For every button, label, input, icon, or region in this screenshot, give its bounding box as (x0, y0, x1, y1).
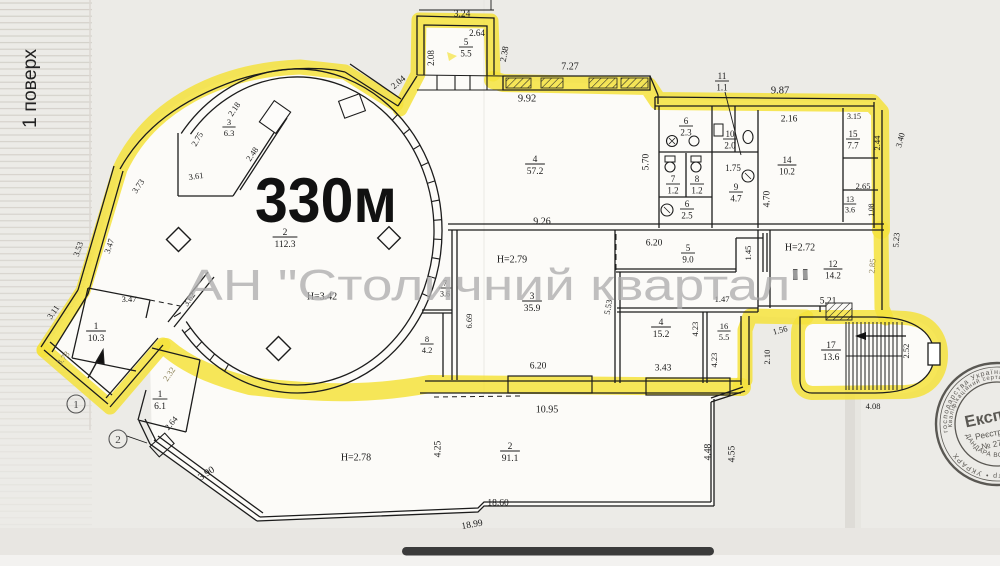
svg-text:13.6: 13.6 (823, 353, 840, 363)
svg-text:H=2.78: H=2.78 (341, 453, 371, 464)
svg-text:3: 3 (227, 117, 231, 127)
svg-text:13: 13 (846, 195, 854, 204)
svg-text:112.3: 112.3 (274, 240, 295, 250)
svg-text:2.52: 2.52 (901, 344, 911, 359)
svg-text:6.3: 6.3 (224, 128, 235, 138)
svg-text:9.92: 9.92 (518, 94, 536, 105)
svg-text:4.7: 4.7 (730, 194, 742, 204)
svg-text:6: 6 (684, 116, 689, 126)
svg-text:2: 2 (115, 434, 121, 446)
svg-text:3.15: 3.15 (847, 112, 861, 121)
svg-text:5.23: 5.23 (890, 232, 901, 248)
svg-text:3.24: 3.24 (454, 9, 471, 19)
svg-text:АН "Столичний квартал": АН "Столичний квартал" (186, 261, 810, 310)
svg-text:4.25: 4.25 (433, 440, 443, 457)
svg-text:1: 1 (94, 322, 99, 332)
svg-text:4.55: 4.55 (727, 445, 737, 462)
svg-text:57.2: 57.2 (527, 167, 544, 177)
svg-text:10.2: 10.2 (779, 167, 795, 177)
svg-text:15: 15 (849, 129, 859, 139)
svg-text:10.95: 10.95 (536, 405, 559, 416)
svg-text:1.2: 1.2 (667, 186, 678, 196)
svg-text:1.08: 1.08 (867, 203, 876, 216)
svg-text:3.43: 3.43 (655, 363, 672, 373)
svg-text:1: 1 (158, 390, 163, 400)
svg-text:14.2: 14.2 (825, 271, 841, 281)
svg-text:12: 12 (829, 259, 838, 269)
svg-text:9.87: 9.87 (771, 86, 789, 97)
svg-text:5.5: 5.5 (460, 49, 472, 59)
svg-text:4.2: 4.2 (422, 345, 433, 355)
svg-text:2.85: 2.85 (866, 258, 877, 274)
svg-text:3.61: 3.61 (188, 170, 204, 182)
svg-text:4.70: 4.70 (762, 190, 772, 207)
svg-text:2.0: 2.0 (724, 141, 736, 151)
svg-text:2.16: 2.16 (781, 114, 798, 124)
svg-text:9: 9 (734, 182, 739, 192)
svg-text:7.27: 7.27 (561, 62, 579, 73)
svg-text:7.7: 7.7 (847, 141, 859, 151)
svg-text:16: 16 (720, 321, 729, 331)
svg-text:5.21: 5.21 (820, 296, 837, 306)
svg-text:2.65: 2.65 (856, 181, 871, 191)
svg-text:17: 17 (826, 341, 836, 351)
svg-text:1 поверх: 1 поверх (19, 49, 41, 128)
svg-text:6.69: 6.69 (464, 314, 474, 329)
svg-text:2.64: 2.64 (469, 28, 485, 38)
svg-text:6.1: 6.1 (154, 402, 166, 412)
svg-text:2: 2 (508, 442, 513, 452)
svg-text:4.48: 4.48 (703, 443, 713, 460)
svg-text:15.2: 15.2 (653, 330, 670, 340)
svg-text:18.60: 18.60 (487, 498, 509, 508)
svg-text:14: 14 (783, 155, 793, 165)
svg-text:11: 11 (718, 71, 727, 81)
svg-text:5: 5 (464, 37, 469, 47)
svg-text:H=2.72: H=2.72 (785, 243, 815, 254)
svg-text:6: 6 (685, 199, 690, 209)
svg-text:4.08: 4.08 (866, 401, 881, 411)
svg-text:1.1: 1.1 (716, 83, 727, 93)
svg-text:330м: 330м (255, 166, 397, 236)
svg-text:8: 8 (425, 334, 429, 344)
svg-text:91.1: 91.1 (502, 454, 519, 464)
svg-text:8: 8 (695, 174, 700, 184)
svg-text:5: 5 (686, 243, 691, 253)
svg-text:4.23: 4.23 (709, 353, 719, 368)
svg-text:2.08: 2.08 (426, 50, 436, 66)
svg-text:3.6: 3.6 (845, 206, 855, 215)
svg-text:4: 4 (659, 318, 664, 328)
svg-text:10.3: 10.3 (88, 334, 105, 344)
svg-text:4.23: 4.23 (690, 322, 700, 337)
svg-text:1.75: 1.75 (725, 163, 741, 173)
svg-text:5.5: 5.5 (719, 332, 730, 342)
svg-text:2.44: 2.44 (872, 135, 882, 151)
svg-text:1: 1 (73, 399, 79, 411)
svg-text:7: 7 (671, 174, 676, 184)
svg-text:4: 4 (533, 155, 538, 165)
svg-text:2.5: 2.5 (681, 211, 693, 221)
svg-text:1.45: 1.45 (743, 246, 753, 261)
svg-text:10: 10 (726, 129, 736, 139)
svg-text:6.20: 6.20 (646, 238, 663, 248)
svg-text:2.3: 2.3 (680, 128, 692, 138)
svg-text:6.20: 6.20 (530, 361, 547, 371)
svg-text:1.2: 1.2 (691, 186, 702, 196)
svg-text:2.10: 2.10 (762, 350, 772, 365)
svg-text:5.70: 5.70 (641, 153, 651, 170)
svg-text:9.26: 9.26 (533, 217, 551, 228)
svg-text:3.47: 3.47 (122, 294, 137, 304)
